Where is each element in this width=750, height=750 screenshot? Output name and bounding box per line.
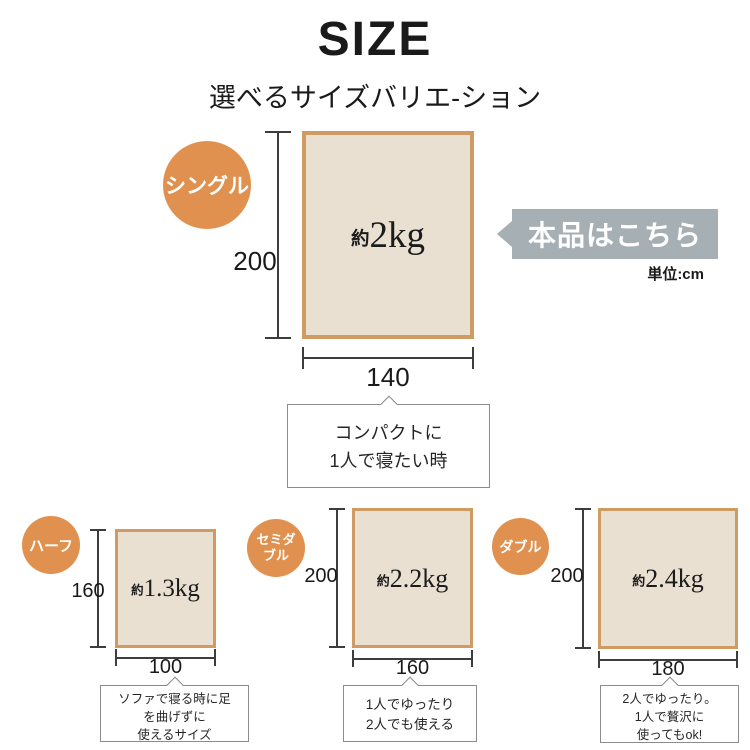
note-callout-semidouble: 1人でゆったり 2人でも使える (343, 685, 477, 742)
unit-label: 単位:cm (599, 263, 704, 284)
weight-value: 2.4kg (645, 564, 704, 593)
dim-cap (90, 646, 106, 648)
height-value-double: 200 (537, 565, 597, 588)
weight-value: 1.3kg (144, 575, 200, 602)
page-subtitle: 選べるサイズバリエ-ション (0, 76, 750, 115)
weight-value: 2.2kg (390, 564, 449, 593)
note-line: 2人でも使える (344, 715, 476, 735)
callout-notch-icon (380, 396, 397, 413)
size-badge-half: ハーフ (22, 516, 80, 574)
weight-double: 約2.4kg (632, 563, 704, 594)
width-value-half: 100 (115, 656, 216, 679)
height-dimension-line-single (265, 131, 291, 339)
weight-prefix: 約 (632, 573, 645, 588)
weight-prefix: 約 (131, 584, 144, 598)
size-badge-semidouble-label-line2: ブル (263, 548, 289, 564)
weight-half: 約1.3kg (131, 574, 200, 603)
size-badge-semidouble-label-line1: セミダ (256, 532, 295, 548)
weight-prefix: 約 (351, 227, 370, 248)
dim-cap (265, 337, 291, 339)
dim-cap (329, 646, 345, 648)
blanket-double: 約2.4kg (598, 508, 738, 649)
dim-line (277, 131, 279, 339)
note-line: 1人で寝たい時 (288, 448, 489, 476)
blanket-semidouble: 約2.2kg (352, 508, 473, 648)
weight-value: 2kg (370, 215, 426, 256)
width-value-semidouble: 160 (352, 657, 473, 680)
note-line: 使えるサイズ (101, 727, 248, 745)
size-badge-half-label: ハーフ (29, 535, 73, 556)
size-badge-single: シングル (163, 141, 251, 229)
blanket-half: 約1.3kg (115, 529, 216, 648)
size-badge-single-label: シングル (165, 170, 249, 200)
weight-semidouble: 約2.2kg (377, 563, 449, 594)
weight-single: 約2kg (351, 214, 425, 257)
note-callout-double: 2人でゆったり。 1人で贅沢に 使ってもok! (600, 685, 739, 743)
weight-prefix: 約 (377, 573, 390, 588)
note-line: 1人でゆったり (344, 695, 476, 715)
size-badge-double-label: ダブル (500, 537, 542, 557)
width-value-single: 140 (302, 362, 474, 393)
arrow-left-icon (497, 221, 512, 247)
this-product-banner: 本品はこちら (497, 209, 718, 259)
note-line: を曲げずに (101, 709, 248, 727)
note-callout-half: ソファで寝る時に足 を曲げずに 使えるサイズ (100, 685, 249, 742)
note-callout-single: コンパクトに 1人で寝たい時 (287, 404, 490, 488)
note-line: コンパクトに (288, 420, 489, 448)
page-title: SIZE (0, 12, 750, 67)
size-infographic: SIZE 選べるサイズバリエ-ション シングル 200 約2kg 140 本品は… (0, 0, 750, 750)
note-line: 使ってもok! (601, 727, 738, 745)
height-value-half: 160 (58, 580, 118, 603)
height-value-semidouble: 200 (291, 565, 351, 588)
height-value-single: 200 (225, 246, 285, 277)
dim-line (302, 357, 474, 359)
blanket-single: 約2kg (302, 131, 474, 339)
note-line: 1人で贅沢に (601, 709, 738, 727)
this-product-banner-label: 本品はこちら (512, 209, 718, 259)
dim-cap (575, 647, 591, 649)
